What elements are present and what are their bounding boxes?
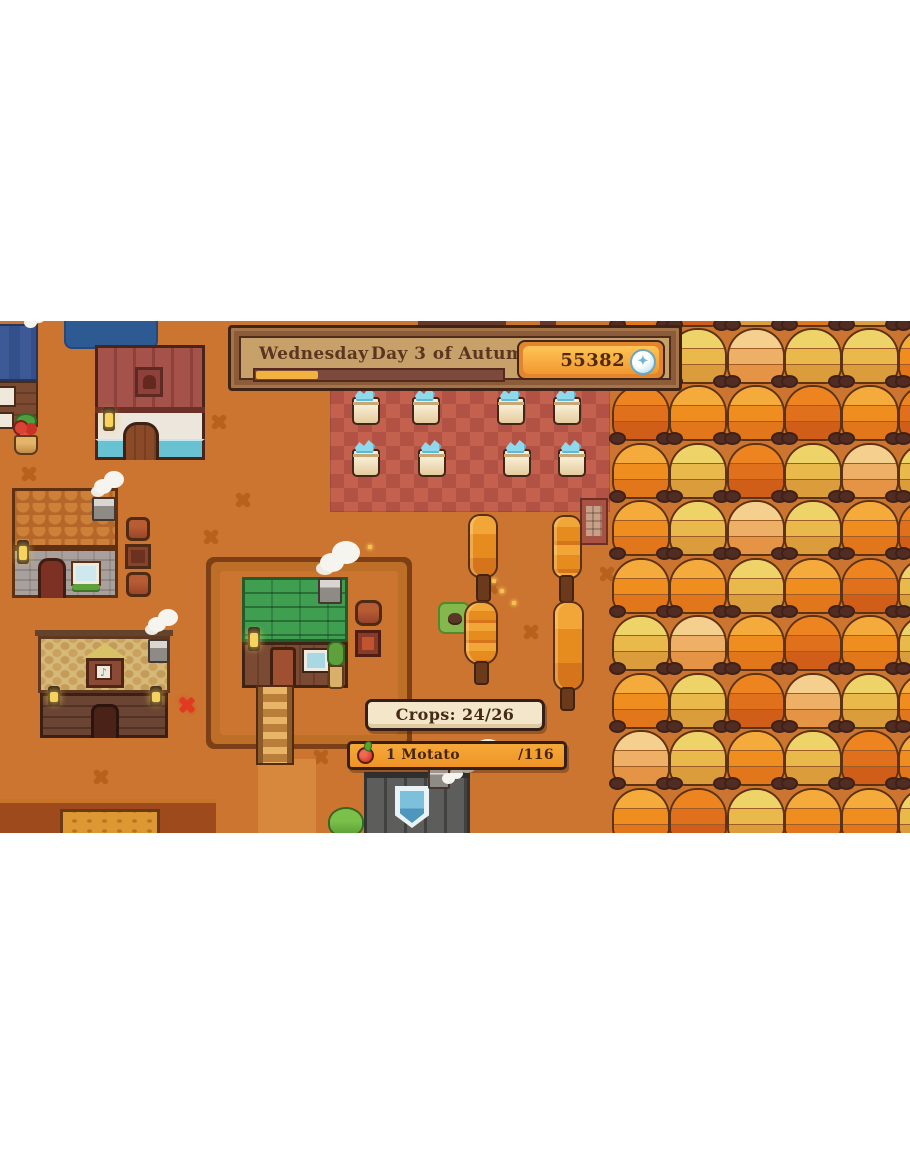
ground-decal <box>208 411 230 433</box>
sparkle <box>492 579 496 583</box>
autumn-tree[interactable] <box>900 617 910 669</box>
ground-decal <box>90 766 112 788</box>
ladder[interactable] <box>258 687 292 763</box>
market-leg <box>580 498 608 545</box>
game-viewport[interactable]: ♪ <box>0 321 910 833</box>
day-progress-bar <box>253 368 505 382</box>
ground-decal <box>18 463 40 485</box>
autumn-tree[interactable] <box>843 560 897 612</box>
house-door[interactable] <box>38 558 66 598</box>
harvest-capacity-label: /116 <box>518 747 554 763</box>
autumn-tree[interactable] <box>900 790 910 833</box>
autumn-tree[interactable] <box>729 445 783 497</box>
autumn-tree[interactable] <box>786 790 840 833</box>
coin-icon: ✦ <box>630 349 656 375</box>
totem-stack[interactable] <box>554 517 580 577</box>
crops-label: Crops: 24/26 <box>368 702 542 728</box>
autumn-tree[interactable] <box>843 617 897 669</box>
sparkle <box>500 589 504 593</box>
autumn-tree[interactable] <box>843 321 897 325</box>
plant-leaves <box>329 643 343 665</box>
autumn-tree[interactable] <box>786 445 840 497</box>
wall-sign[interactable] <box>0 412 14 429</box>
wall-pot[interactable] <box>355 600 382 626</box>
day-label: Day 3 of Autumn <box>371 344 537 364</box>
blue-roof <box>0 324 38 381</box>
wall-sign[interactable] <box>0 386 16 407</box>
crops-tooltip: Crops: 24/26 <box>365 699 545 731</box>
autumn-tree[interactable] <box>786 617 840 669</box>
totem-stem <box>478 576 489 600</box>
autumn-tree[interactable] <box>729 790 783 833</box>
totem-stem <box>561 577 572 601</box>
harvest-bar: 1 Motato /116 <box>347 741 567 770</box>
autumn-tree[interactable] <box>786 560 840 612</box>
dormer-sign-music-note: ♪ <box>95 664 112 680</box>
berry-pot[interactable] <box>13 419 39 457</box>
date-banner: Wednesday Day 3 of Autumn 55382 ✦ <box>228 325 682 391</box>
bottom-terrace <box>0 799 216 833</box>
autumn-tree[interactable] <box>671 445 725 497</box>
plant-pot <box>328 665 344 689</box>
autumn-tree[interactable] <box>729 502 783 554</box>
window-plants <box>72 584 100 592</box>
autumn-tree[interactable] <box>900 321 910 325</box>
smoke-puff <box>442 773 455 784</box>
ground-decal <box>200 526 222 548</box>
totem-stem <box>562 689 573 709</box>
preserve-jar[interactable] <box>412 397 440 425</box>
preserve-jar[interactable] <box>418 449 446 477</box>
sparkle <box>512 601 516 605</box>
autumn-tree[interactable] <box>729 617 783 669</box>
sparkle <box>368 545 372 549</box>
autumn-tree[interactable] <box>614 387 668 439</box>
ground-decal <box>520 621 542 643</box>
roof-lantern <box>248 627 260 651</box>
autumn-tree[interactable] <box>729 675 783 727</box>
autumn-tree[interactable] <box>843 330 897 382</box>
market-stall[interactable] <box>330 381 610 512</box>
money-display: 55382 ✦ <box>517 340 665 380</box>
planter-crate[interactable] <box>125 544 151 569</box>
autumn-tree[interactable] <box>671 617 725 669</box>
preserve-jar[interactable] <box>503 449 531 477</box>
autumn-tree[interactable] <box>729 321 783 325</box>
autumn-tree[interactable] <box>843 675 897 727</box>
red-marker-x[interactable] <box>177 695 197 715</box>
autumn-tree[interactable] <box>900 732 910 784</box>
totem-stack[interactable] <box>555 603 582 689</box>
preserve-jar[interactable] <box>497 397 525 425</box>
autumn-tree[interactable] <box>671 675 725 727</box>
autumn-tree[interactable] <box>671 387 725 439</box>
autumn-tree[interactable] <box>614 675 668 727</box>
autumn-tree[interactable] <box>900 387 910 439</box>
smoke-puff <box>94 479 112 494</box>
preserve-jar[interactable] <box>352 449 380 477</box>
smoke-puff <box>148 617 166 632</box>
autumn-tree[interactable] <box>729 387 783 439</box>
terrace-panel <box>60 809 160 833</box>
autumn-tree[interactable] <box>843 790 897 833</box>
banner-panel: Wednesday Day 3 of Autumn 55382 ✦ <box>239 336 671 380</box>
chimney <box>148 639 169 663</box>
autumn-tree[interactable] <box>614 790 668 833</box>
autumn-tree[interactable] <box>614 732 668 784</box>
berries <box>15 422 27 434</box>
autumn-tree[interactable] <box>614 617 668 669</box>
potted-plant[interactable] <box>328 643 344 689</box>
house-door[interactable] <box>123 422 159 460</box>
autumn-tree[interactable] <box>786 387 840 439</box>
chimney <box>318 578 342 604</box>
totem-stack[interactable] <box>466 603 496 663</box>
preserve-jar[interactable] <box>558 449 586 477</box>
totem-stem <box>476 663 487 683</box>
house-window <box>73 563 99 584</box>
smoke-puff <box>320 553 344 572</box>
red-roof-house[interactable] <box>95 345 205 460</box>
autumn-tree[interactable] <box>729 732 783 784</box>
wall-lantern <box>17 540 29 564</box>
chimney <box>92 497 116 521</box>
preserve-jar[interactable] <box>352 397 380 425</box>
wall-lantern <box>103 407 115 431</box>
autumn-tree[interactable] <box>900 445 910 497</box>
planter-pot[interactable] <box>126 517 150 541</box>
post-lantern <box>48 686 60 706</box>
autumn-tree[interactable] <box>786 732 840 784</box>
autumn-tree[interactable] <box>614 560 668 612</box>
weekday-label: Wednesday <box>259 344 369 364</box>
wall-crate[interactable] <box>355 630 381 657</box>
totem-stack[interactable] <box>470 516 496 576</box>
autumn-tree[interactable] <box>671 790 725 833</box>
seed-hole <box>448 613 462 625</box>
money-value: 55382 <box>560 350 625 371</box>
autumn-tree[interactable] <box>671 732 725 784</box>
autumn-tree[interactable] <box>729 330 783 382</box>
autumn-tree[interactable] <box>729 560 783 612</box>
autumn-tree[interactable] <box>786 502 840 554</box>
bush[interactable] <box>330 809 362 833</box>
harvest-item-label: 1 Motato <box>386 747 460 763</box>
planter-pot[interactable] <box>126 572 151 597</box>
autumn-tree[interactable] <box>786 675 840 727</box>
house-door[interactable] <box>270 647 296 688</box>
autumn-tree[interactable] <box>843 387 897 439</box>
autumn-tree[interactable] <box>786 330 840 382</box>
ground-decal <box>232 489 254 511</box>
autumn-tree[interactable] <box>843 502 897 554</box>
day-progress-fill <box>256 371 318 379</box>
autumn-tree[interactable] <box>786 321 840 325</box>
crate-inner <box>131 550 145 563</box>
preserve-jar[interactable] <box>553 397 581 425</box>
autumn-tree[interactable] <box>900 675 910 727</box>
autumn-tree[interactable] <box>614 445 668 497</box>
shield-inner <box>400 791 424 823</box>
market-leg-window <box>586 506 602 536</box>
motato-icon <box>357 747 374 764</box>
motato-sprout <box>364 741 372 751</box>
autumn-tree[interactable] <box>843 445 897 497</box>
autumn-tree[interactable] <box>671 560 725 612</box>
autumn-tree[interactable] <box>614 502 668 554</box>
autumn-tree[interactable] <box>900 502 910 554</box>
autumn-tree[interactable] <box>843 732 897 784</box>
post-lantern <box>150 686 162 706</box>
autumn-tree[interactable] <box>900 330 910 382</box>
house-door[interactable] <box>91 704 119 738</box>
pot-body <box>14 435 38 455</box>
path <box>258 759 316 833</box>
house-window <box>304 650 328 671</box>
crate-inner <box>362 637 374 650</box>
attic-window-inner <box>143 375 156 389</box>
autumn-tree[interactable] <box>671 502 725 554</box>
autumn-tree[interactable] <box>900 560 910 612</box>
